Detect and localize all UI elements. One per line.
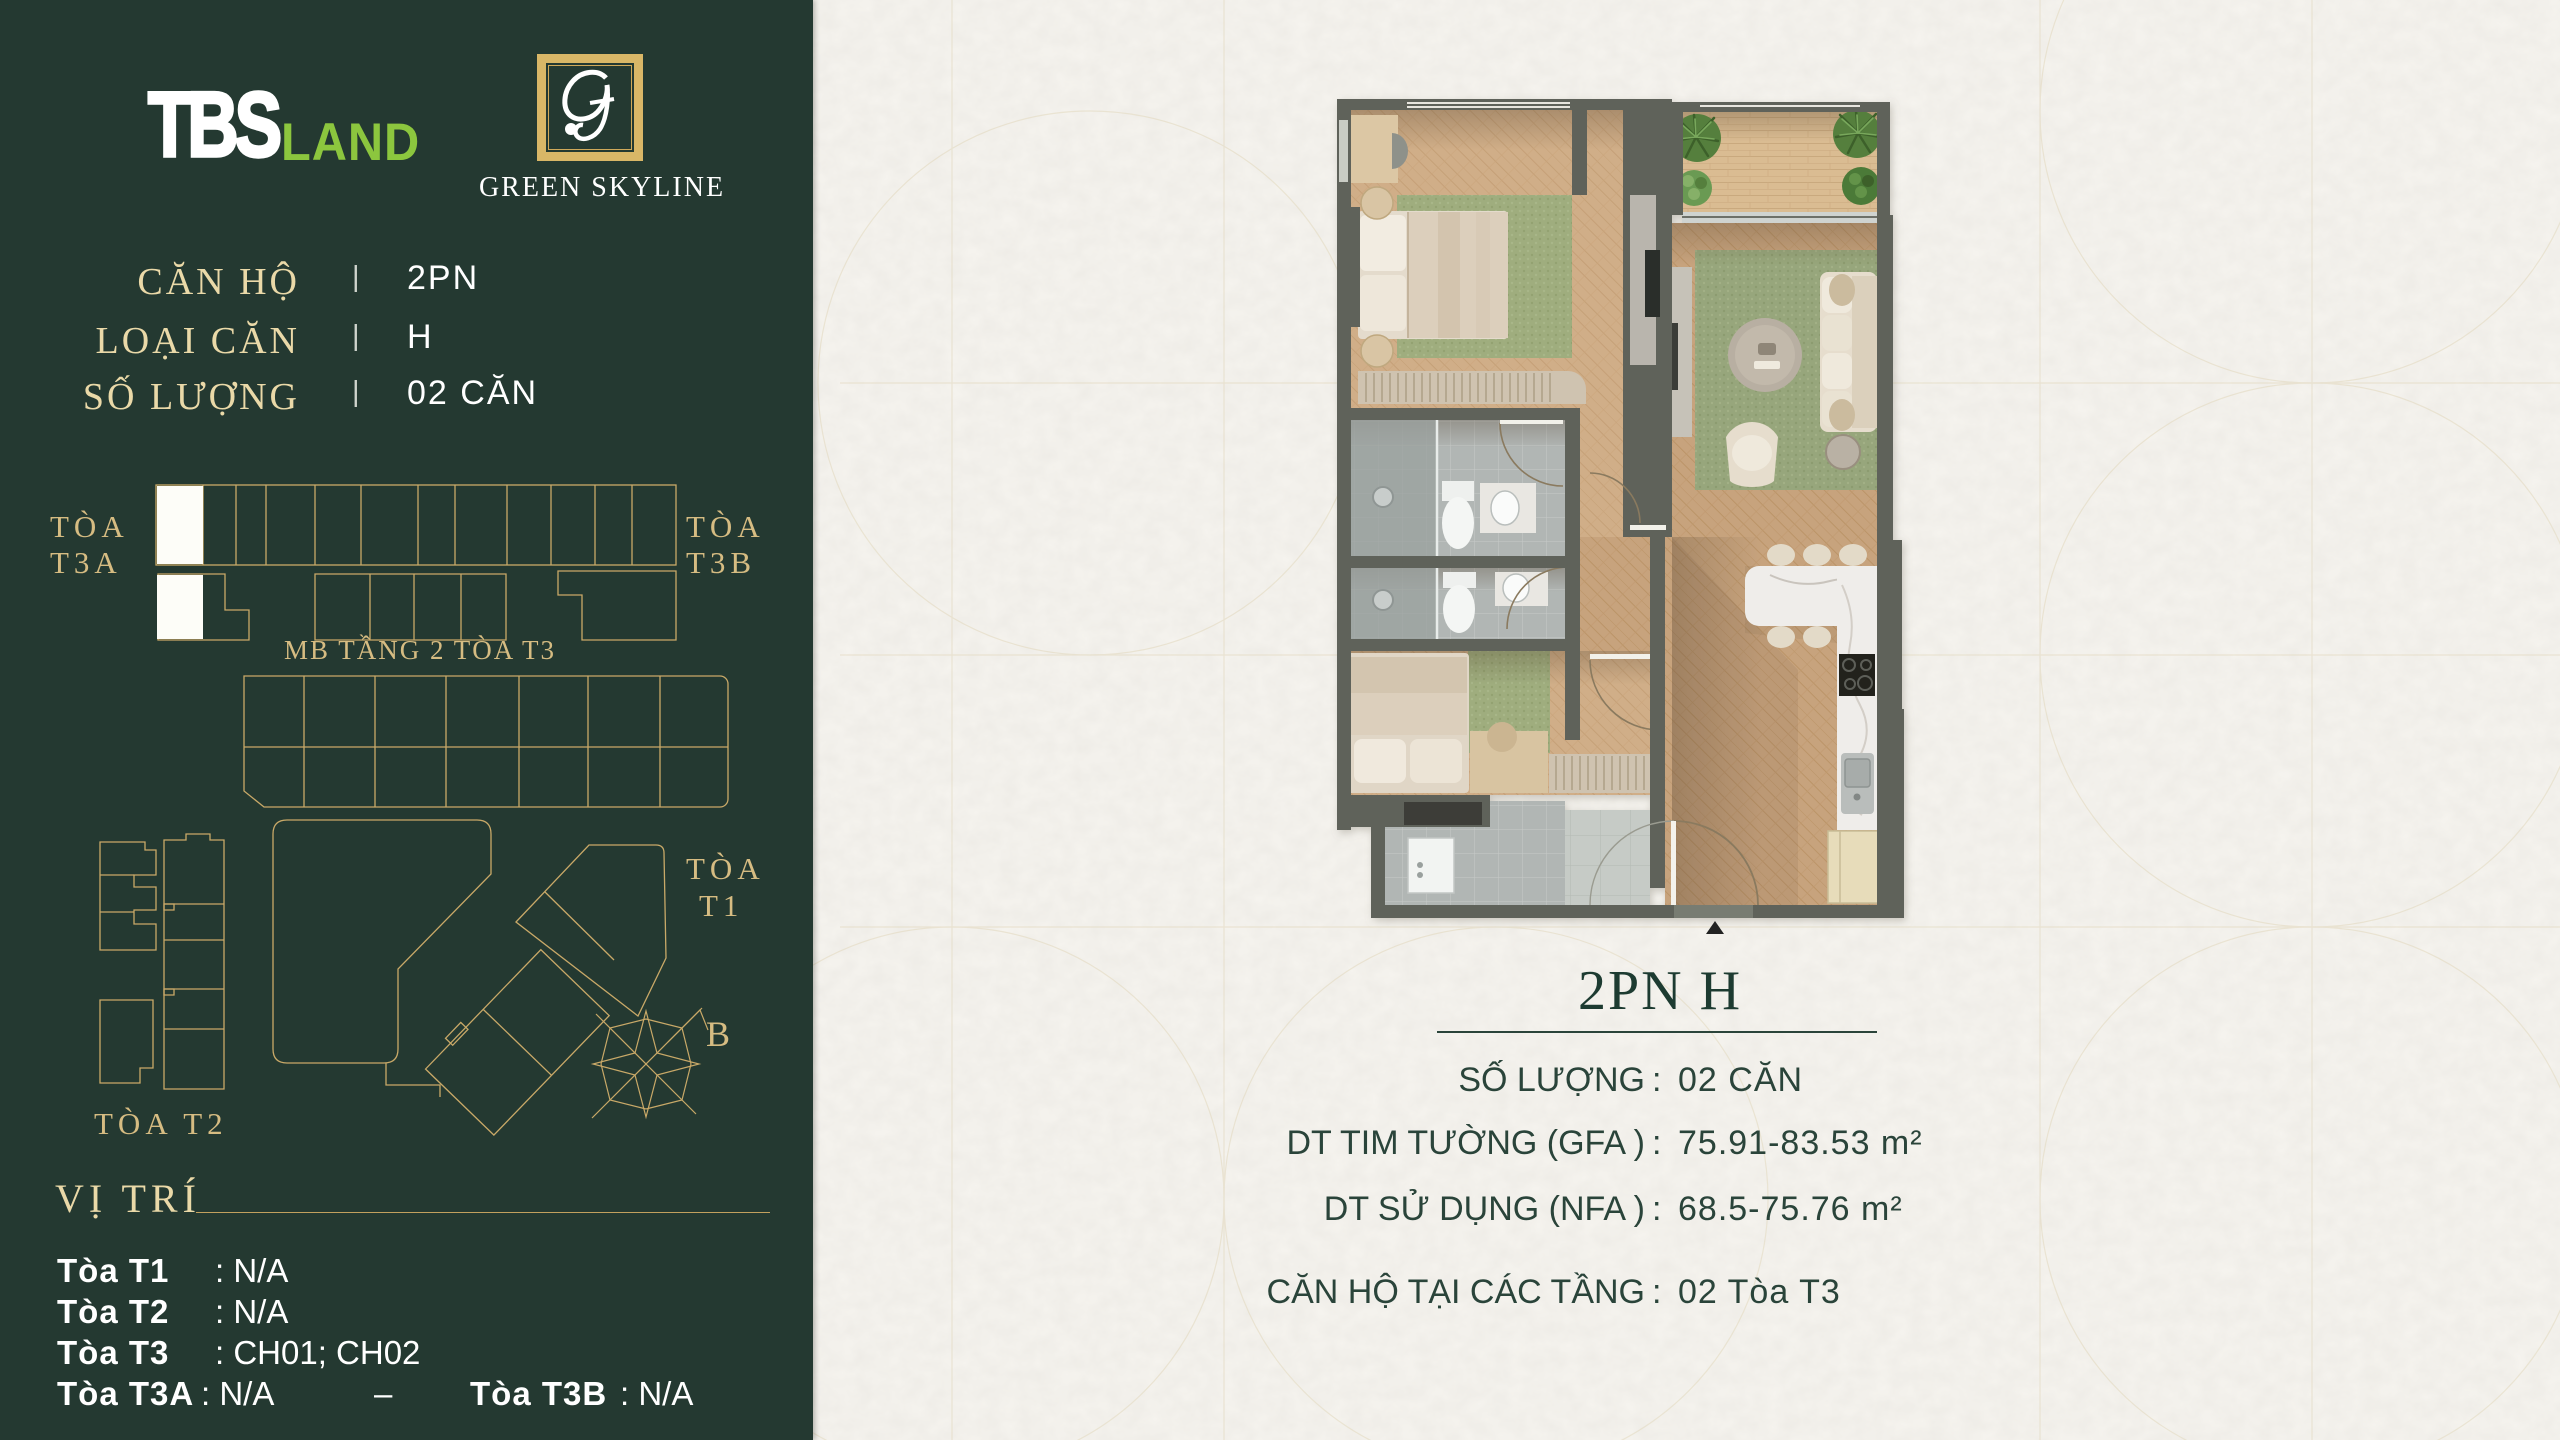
svg-text:TÒA: TÒA xyxy=(686,509,765,544)
svg-text:MB TẦNG 2 TÒA T3: MB TẦNG 2 TÒA T3 xyxy=(284,634,556,665)
svg-text:T3A: T3A xyxy=(50,545,122,580)
svg-text:TÒA: TÒA xyxy=(686,851,765,886)
svg-text:B: B xyxy=(706,1014,730,1054)
svg-text:T3B: T3B xyxy=(686,545,756,580)
svg-text:T1: T1 xyxy=(699,888,743,923)
svg-text:TÒA: TÒA xyxy=(50,509,129,544)
